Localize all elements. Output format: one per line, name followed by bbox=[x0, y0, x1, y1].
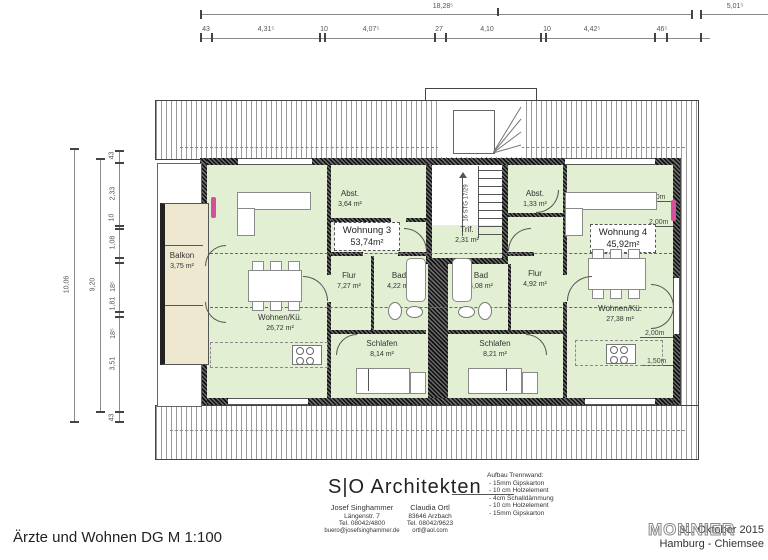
stove bbox=[292, 345, 322, 365]
abst-wall-right bbox=[508, 213, 563, 217]
dim-label: 1,08 bbox=[109, 236, 116, 250]
dim-label: 3,51 bbox=[109, 357, 116, 371]
dim-label-left-inner: 9,20 bbox=[89, 278, 96, 292]
partner2-tel: Tel. 08042/9623 bbox=[392, 520, 468, 527]
dim-label: 4,07⁵ bbox=[363, 26, 380, 33]
wall-note-item: - 10 cm Holzelement bbox=[487, 502, 554, 510]
wardrobe bbox=[522, 372, 538, 394]
roof-dash-top bbox=[180, 147, 685, 148]
room-label-trif: Trif. 2,31 m² bbox=[438, 224, 496, 246]
sink bbox=[458, 306, 475, 318]
dim-label: 10 bbox=[108, 214, 115, 222]
dim-line-top-segments bbox=[200, 38, 710, 39]
wall-note: Aufbau Trennwand: - 15mm Gipskarton - 10… bbox=[487, 472, 554, 517]
partner2-address: 83646 Arzbach bbox=[392, 513, 468, 520]
dim-label-overall: 18,28⁵ bbox=[433, 3, 453, 10]
window bbox=[228, 398, 308, 405]
partner2-block: Claudia Ortl 83646 Arzbach Tel. 08042/96… bbox=[392, 504, 468, 535]
unit-label-wohnung3: Wohnung 3 53,74m² bbox=[334, 222, 400, 251]
window bbox=[673, 278, 680, 334]
chair bbox=[288, 261, 300, 271]
chair bbox=[610, 249, 622, 259]
bed bbox=[356, 368, 410, 394]
dim-line-left-inner bbox=[100, 158, 101, 412]
wall-note-item: - 15mm Gipskarton bbox=[487, 480, 554, 488]
dim-label: 10 bbox=[543, 26, 551, 33]
room-label-wohnen-left: Wohnen/Kü. 26,72 m² bbox=[240, 312, 320, 334]
toilet bbox=[388, 302, 402, 320]
dim-tick bbox=[497, 8, 499, 16]
dim-label: 4,42⁵ bbox=[584, 26, 601, 33]
pink-marker bbox=[211, 197, 216, 218]
firm-name: S|O Architekten bbox=[328, 476, 482, 499]
abst-wall-left bbox=[406, 218, 426, 222]
chair bbox=[270, 301, 282, 311]
plan-title: Ärzte und Wohnen DG M 1:100 bbox=[13, 529, 222, 546]
roof-band-top bbox=[155, 100, 699, 160]
window bbox=[585, 398, 655, 405]
dim-line-top-right bbox=[700, 14, 768, 15]
partner2-email: ortl@aol.com bbox=[392, 528, 468, 535]
window bbox=[565, 158, 655, 165]
window bbox=[238, 158, 312, 165]
partner2-name: Claudia Ortl bbox=[392, 504, 468, 511]
roof-band-bottom bbox=[155, 405, 699, 460]
chair bbox=[288, 301, 300, 311]
dim-line-top-overall bbox=[200, 14, 692, 15]
bathtub bbox=[452, 258, 472, 302]
toilet bbox=[478, 302, 492, 320]
chair bbox=[592, 289, 604, 299]
dining-table bbox=[248, 270, 302, 302]
wall-note-item: - 4cm Schalldämmung bbox=[487, 495, 554, 503]
dim-label: 4,31⁵ bbox=[258, 26, 275, 33]
stair-shaft-wall-right bbox=[502, 165, 508, 258]
skylight bbox=[453, 110, 495, 154]
dim-label: 43 bbox=[202, 26, 210, 33]
chair bbox=[628, 249, 640, 259]
dim-label: 18⁵ bbox=[110, 328, 117, 339]
roof-dash-bottom bbox=[170, 430, 685, 431]
schlafen-wall-left bbox=[331, 330, 426, 334]
chair bbox=[270, 261, 282, 271]
wall-note-item: - 15mm Gipskarton bbox=[487, 510, 554, 518]
dim-label: 4,10 bbox=[480, 26, 494, 33]
dim-label: 18⁵ bbox=[110, 281, 117, 292]
dim-line-left-outer bbox=[74, 148, 75, 422]
winder-stairs bbox=[493, 105, 523, 157]
wall-note-title: Aufbau Trennwand: bbox=[487, 472, 554, 480]
roof-band-right bbox=[680, 158, 699, 405]
sofa bbox=[565, 208, 583, 236]
stove bbox=[606, 344, 636, 364]
floor-plan-sheet: 18,28⁵ 5,01⁵ 43 4,31⁵ 10 4,07⁵ 27 4,10 1… bbox=[0, 0, 768, 560]
bad-wall-left bbox=[371, 256, 374, 330]
schlafen-wall-right bbox=[448, 330, 567, 334]
dining-table bbox=[588, 258, 646, 290]
chair bbox=[628, 289, 640, 299]
dim-label-top-right: 5,01⁵ bbox=[727, 3, 744, 10]
wall-note-item: - 10 cm Holzelement bbox=[487, 487, 554, 495]
partition-right bbox=[563, 302, 567, 398]
room-label-wohnen-right: Wohnen/Kü. 27,38 m² bbox=[580, 303, 660, 325]
room-label-balkon: Balkon 3,75 m² bbox=[162, 250, 202, 272]
sofa bbox=[237, 208, 255, 236]
dim-label: 43 bbox=[108, 152, 115, 160]
level-label-200: 2,00m bbox=[644, 330, 665, 337]
room-label-schlafen-left: Schlafen 8,14 m² bbox=[352, 338, 412, 360]
dim-line-left-segments bbox=[119, 150, 120, 422]
balcony bbox=[160, 203, 209, 365]
sink bbox=[406, 306, 423, 318]
wardrobe bbox=[410, 372, 426, 394]
dim-tick bbox=[691, 10, 693, 19]
stair-count-label: 16 STG 17/29 bbox=[464, 184, 470, 221]
room-label-abst-left: Abst. 3,64 m² bbox=[330, 188, 370, 210]
chair bbox=[592, 249, 604, 259]
chair bbox=[252, 301, 264, 311]
dim-label: 46⁵ bbox=[657, 26, 668, 33]
dim-label: 1,81 bbox=[109, 297, 116, 311]
room-label-schlafen-right: Schlafen 8,21 m² bbox=[465, 338, 525, 360]
watermark: MONNIER bbox=[648, 520, 735, 540]
room-label-flur-left: Flur 7,27 m² bbox=[328, 270, 370, 292]
party-wall bbox=[428, 264, 448, 398]
chair bbox=[252, 261, 264, 271]
dim-label: 43 bbox=[108, 414, 115, 422]
dim-label-left-outer: 10,06 bbox=[63, 276, 70, 294]
dim-label: 10 bbox=[320, 26, 328, 33]
bad-wall-right bbox=[508, 264, 511, 330]
dim-tick bbox=[200, 10, 202, 19]
dim-tick bbox=[700, 10, 702, 19]
dim-label: 27 bbox=[435, 26, 443, 33]
pink-marker bbox=[671, 200, 676, 221]
bathtub bbox=[406, 258, 426, 302]
chair bbox=[610, 289, 622, 299]
bed bbox=[468, 368, 522, 394]
room-label-flur-right: Flur 4,92 m² bbox=[512, 268, 558, 290]
dim-label: 2,33 bbox=[109, 187, 116, 201]
stair-direction-arrow bbox=[459, 172, 467, 178]
